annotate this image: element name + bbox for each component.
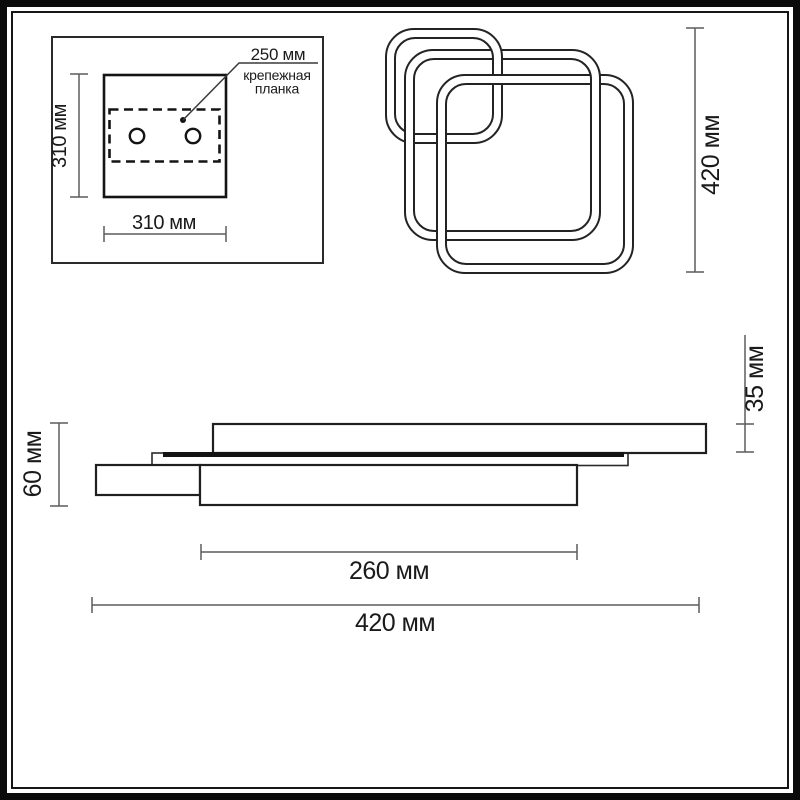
mounting-hole-left [130, 129, 144, 143]
technical-drawing-page: 310 мм 310 мм 250 мм крепежная планка 42… [0, 0, 800, 800]
fixture-side-view: 60 мм 35 мм 260 мм 420 мм [19, 335, 769, 637]
mounting-plate-outline [104, 75, 226, 197]
top-view-height-dimension: 420 мм [686, 28, 725, 272]
plate-width-label: 310 мм [132, 212, 196, 234]
mounting-plate-panel: 310 мм 310 мм 250 мм крепежная планка [49, 37, 323, 263]
top-view-height-label: 420 мм [697, 115, 725, 195]
bracket-name-line2: планка [255, 81, 300, 97]
bracket-length-label: 250 мм [251, 45, 306, 64]
side-view-top-section-label: 35 мм [741, 346, 769, 413]
ceiling-lamp-dimension-drawing: 310 мм 310 мм 250 мм крепежная планка 42… [0, 0, 800, 800]
side-view-base-width-label: 260 мм [349, 557, 429, 585]
side-view-overall-width-label: 420 мм [355, 609, 435, 637]
side-view-base-width-dimension: 260 мм [201, 544, 577, 585]
side-view-top-section-dimension: 35 мм [736, 335, 769, 452]
lower-frame-profile [200, 465, 577, 505]
led-strip-shadow [163, 452, 624, 457]
large-square-frame [437, 75, 633, 273]
plate-height-label: 310 мм [49, 104, 71, 168]
left-frame-profile [96, 465, 200, 495]
side-view-overall-width-dimension: 420 мм [92, 597, 699, 637]
side-view-total-height-dimension: 60 мм [19, 423, 68, 506]
side-view-total-height-label: 60 мм [19, 431, 47, 498]
mounting-hole-right [186, 129, 200, 143]
upper-frame-profile [213, 424, 706, 453]
fixture-top-view: 420 мм [386, 28, 725, 273]
